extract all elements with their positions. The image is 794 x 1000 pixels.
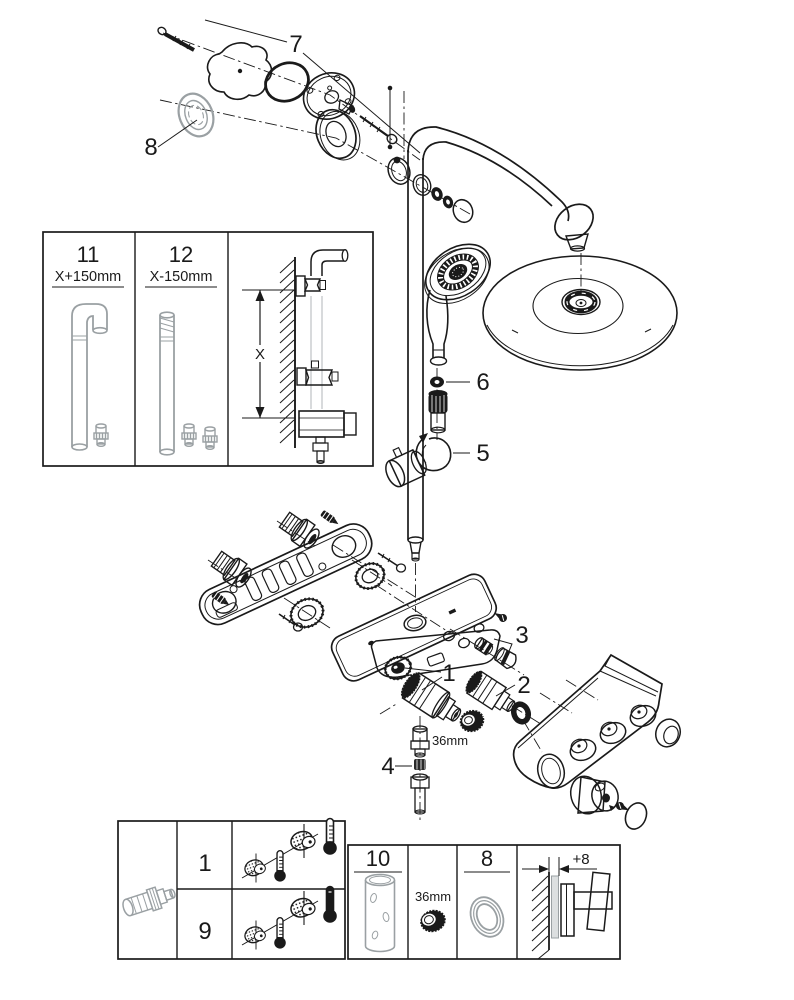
long-screw-icon — [360, 116, 399, 145]
shower-exploded-diagram: 8 7 — [0, 0, 794, 1000]
oval-cap-icon — [622, 800, 651, 833]
thermometer-icon — [323, 819, 337, 855]
callout-7: 7 — [289, 31, 302, 58]
service-ring-icon — [465, 892, 510, 942]
shower-column-group: 6 5 — [379, 127, 677, 612]
anchor-plate-icon — [208, 43, 272, 99]
mounting-screw-icon — [157, 26, 194, 50]
callout-4: 4 — [381, 753, 394, 780]
hand-shower-icon — [413, 233, 502, 365]
temperature-knob-icon — [567, 773, 622, 817]
straight-pipe-icon — [160, 312, 174, 455]
row-9-icons — [242, 887, 337, 950]
inset-part-12: 12 — [169, 242, 193, 267]
thermometer-solid-icon — [323, 887, 337, 923]
hose-connector-icon — [429, 390, 448, 433]
pipe-length-inset-box: 11 X+150mm 12 X-150mm — [43, 232, 373, 466]
wall-plug-icon — [320, 510, 340, 527]
row-1-icons — [242, 819, 337, 883]
manual-page: 8 7 — [0, 0, 794, 1000]
callout-8: 8 — [144, 134, 157, 161]
table-row-9-label: 9 — [198, 918, 211, 945]
escutcheon-ring-icon — [172, 88, 219, 141]
tube-part-label: 10 — [366, 846, 390, 871]
cover-button-icon — [567, 736, 598, 764]
wall-union-exploded-group: 8 7 — [144, 20, 470, 214]
cartridge-o-ring-icon — [511, 702, 530, 724]
service-nut-size-label: 36mm — [415, 889, 451, 904]
front-cover-group — [512, 655, 684, 832]
inset-dim-11: X+150mm — [55, 269, 122, 285]
dimension-x-label: X — [255, 346, 265, 363]
wall-fixing-marks — [388, 86, 404, 159]
rail-union-parts — [385, 155, 476, 225]
wall-flange-icon — [296, 65, 362, 128]
callout-3: 3 — [515, 622, 528, 649]
check-valve-parts — [473, 636, 519, 670]
rail-bottom-icon — [408, 537, 423, 561]
offset-wall-diagram: +8 — [522, 851, 612, 959]
thermometer-icon — [274, 918, 286, 949]
callout-5: 5 — [476, 440, 489, 467]
cartridge-1-icon — [397, 669, 467, 729]
end-knurl-ring-icon — [652, 716, 684, 751]
gray-cartridge-icon — [120, 882, 177, 919]
service-nut-icon — [417, 907, 449, 936]
cover-button-icon — [597, 719, 628, 747]
offset-label: +8 — [572, 851, 589, 868]
mounting-bracket-icon — [194, 518, 377, 630]
nut-size-label: 36mm — [432, 733, 468, 748]
callout-1: 1 — [442, 660, 455, 687]
service-parts-box: 10 36mm 8 — [348, 845, 620, 959]
o-ring-icon — [259, 56, 315, 108]
thermostat-body-group: 3 1 2 36mm — [328, 570, 542, 822]
inset-dim-12: X-150mm — [150, 269, 213, 285]
extension-tube-icon — [366, 875, 395, 952]
wall-dimension-diagram: X — [242, 250, 356, 464]
mounting-bracket-group — [194, 509, 450, 633]
eccentric-union-icon — [209, 548, 255, 591]
table-row-1-label: 1 — [198, 850, 211, 877]
callout-2: 2 — [517, 672, 530, 699]
inset-part-11: 11 — [77, 242, 100, 267]
thermometer-icon — [274, 851, 286, 882]
rain-shower-head-icon — [483, 256, 677, 370]
shower-arm-holder-icon — [548, 197, 600, 251]
callout-6: 6 — [476, 369, 489, 396]
small-screw-icon — [492, 610, 508, 624]
parts-table-box: 1 9 — [118, 819, 345, 960]
ring-part-label: 8 — [481, 846, 493, 871]
handshower-holder-icon — [379, 433, 451, 490]
